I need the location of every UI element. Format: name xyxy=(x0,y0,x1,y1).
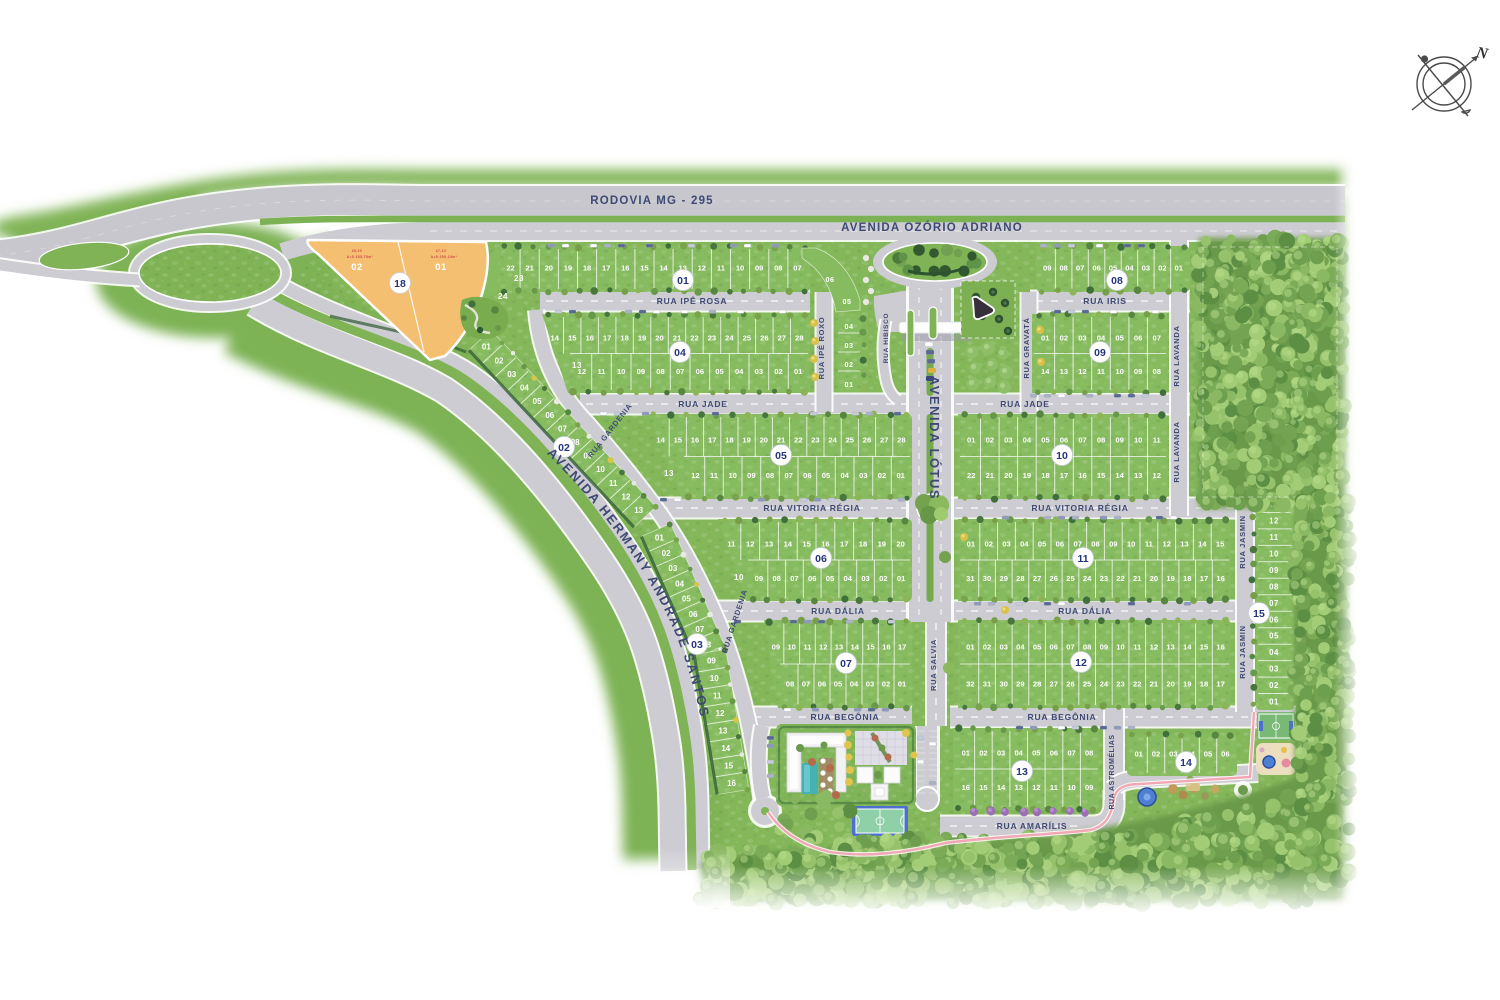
svg-text:02: 02 xyxy=(1269,681,1279,690)
svg-text:26: 26 xyxy=(863,436,871,445)
svg-text:01: 01 xyxy=(962,749,971,758)
svg-text:07: 07 xyxy=(793,264,801,273)
svg-text:26: 26 xyxy=(1050,574,1058,583)
svg-text:14: 14 xyxy=(997,783,1006,792)
svg-text:10: 10 xyxy=(1134,436,1142,445)
svg-text:23: 23 xyxy=(514,274,524,283)
svg-text:08: 08 xyxy=(1085,749,1093,758)
svg-text:06: 06 xyxy=(1134,334,1142,343)
svg-text:13: 13 xyxy=(765,540,773,549)
svg-text:12: 12 xyxy=(698,264,706,273)
svg-text:03: 03 xyxy=(999,642,1007,651)
svg-text:20: 20 xyxy=(896,540,904,549)
svg-text:01: 01 xyxy=(966,642,975,651)
svg-text:16: 16 xyxy=(691,436,699,445)
svg-text:15: 15 xyxy=(568,334,577,343)
svg-text:13: 13 xyxy=(718,727,727,736)
svg-text:01: 01 xyxy=(1269,698,1279,707)
svg-text:14: 14 xyxy=(851,642,860,651)
svg-text:17: 17 xyxy=(840,540,848,549)
svg-text:08: 08 xyxy=(786,679,794,688)
svg-text:RUA IPÊ ROXO: RUA IPÊ ROXO xyxy=(817,317,826,380)
svg-text:29: 29 xyxy=(999,574,1007,583)
svg-text:47,23: 47,23 xyxy=(436,249,446,253)
svg-text:11: 11 xyxy=(803,642,812,651)
svg-text:07: 07 xyxy=(1066,642,1074,651)
svg-text:03: 03 xyxy=(507,370,516,379)
svg-text:RUA JASMIN: RUA JASMIN xyxy=(1238,625,1247,678)
svg-text:18: 18 xyxy=(1041,471,1049,480)
svg-text:03: 03 xyxy=(1004,436,1012,445)
svg-text:16: 16 xyxy=(1216,642,1224,651)
svg-text:24: 24 xyxy=(1100,679,1109,688)
svg-text:05: 05 xyxy=(1115,334,1124,343)
svg-text:03: 03 xyxy=(845,341,854,350)
svg-text:19: 19 xyxy=(1166,574,1174,583)
svg-text:21: 21 xyxy=(777,436,786,445)
svg-text:04: 04 xyxy=(1269,648,1279,657)
svg-text:16: 16 xyxy=(621,264,629,273)
svg-text:31: 31 xyxy=(983,679,992,688)
svg-text:01: 01 xyxy=(845,380,854,389)
svg-text:19: 19 xyxy=(638,334,646,343)
svg-text:08: 08 xyxy=(1083,642,1091,651)
svg-text:15: 15 xyxy=(802,540,811,549)
svg-text:30: 30 xyxy=(983,574,991,583)
svg-text:08: 08 xyxy=(1091,540,1099,549)
svg-text:15: 15 xyxy=(1216,540,1225,549)
svg-text:06: 06 xyxy=(1221,750,1229,759)
svg-text:17: 17 xyxy=(1200,574,1208,583)
svg-text:08: 08 xyxy=(1097,436,1105,445)
svg-text:28: 28 xyxy=(795,334,803,343)
svg-text:01: 01 xyxy=(897,574,906,583)
svg-text:20: 20 xyxy=(1166,679,1174,688)
svg-text:06: 06 xyxy=(696,367,704,376)
svg-text:11: 11 xyxy=(597,367,606,376)
svg-text:09: 09 xyxy=(1043,264,1051,273)
svg-text:15: 15 xyxy=(724,762,733,771)
svg-text:RUA DÁLIA: RUA DÁLIA xyxy=(811,606,865,616)
svg-text:11: 11 xyxy=(1133,642,1142,651)
svg-text:01: 01 xyxy=(794,367,803,376)
svg-text:06: 06 xyxy=(1060,436,1068,445)
svg-text:12: 12 xyxy=(1078,367,1086,376)
svg-text:RUA ASTROMÉLIAS: RUA ASTROMÉLIAS xyxy=(1107,734,1116,809)
svg-text:05: 05 xyxy=(775,450,787,462)
svg-text:06: 06 xyxy=(808,574,816,583)
svg-text:16: 16 xyxy=(727,779,736,788)
svg-text:06: 06 xyxy=(1056,540,1064,549)
svg-text:15: 15 xyxy=(1253,608,1265,620)
svg-text:13: 13 xyxy=(1166,642,1174,651)
svg-text:01: 01 xyxy=(896,471,905,480)
svg-text:22: 22 xyxy=(794,436,802,445)
svg-text:02: 02 xyxy=(1060,334,1068,343)
svg-text:01: 01 xyxy=(967,540,976,549)
svg-text:06: 06 xyxy=(545,411,554,420)
svg-text:10: 10 xyxy=(787,642,795,651)
svg-text:27: 27 xyxy=(880,436,888,445)
svg-text:09: 09 xyxy=(1100,642,1108,651)
svg-text:23: 23 xyxy=(811,436,819,445)
svg-text:07: 07 xyxy=(558,424,567,433)
svg-text:02: 02 xyxy=(986,436,994,445)
svg-text:16: 16 xyxy=(882,642,890,651)
svg-text:13: 13 xyxy=(1180,540,1188,549)
svg-text:12: 12 xyxy=(691,471,699,480)
svg-text:17: 17 xyxy=(603,334,611,343)
svg-text:21: 21 xyxy=(1133,574,1142,583)
svg-text:02: 02 xyxy=(495,356,504,365)
svg-text:01: 01 xyxy=(655,534,664,543)
svg-text:05: 05 xyxy=(843,297,852,306)
svg-text:12: 12 xyxy=(716,709,725,718)
svg-text:17: 17 xyxy=(1060,471,1068,480)
svg-text:15: 15 xyxy=(640,264,649,273)
svg-text:20: 20 xyxy=(1150,574,1158,583)
svg-text:03: 03 xyxy=(859,471,867,480)
svg-text:14: 14 xyxy=(1183,642,1192,651)
svg-text:06: 06 xyxy=(1050,749,1058,758)
svg-text:28: 28 xyxy=(1016,574,1024,583)
svg-text:23: 23 xyxy=(1116,679,1124,688)
svg-text:22: 22 xyxy=(690,334,698,343)
svg-text:06: 06 xyxy=(1269,615,1279,624)
svg-text:10: 10 xyxy=(728,471,736,480)
svg-text:11: 11 xyxy=(717,264,726,273)
svg-text:14: 14 xyxy=(1198,540,1207,549)
svg-text:04: 04 xyxy=(675,579,684,588)
svg-text:08: 08 xyxy=(772,574,780,583)
svg-text:18: 18 xyxy=(583,264,591,273)
svg-text:16: 16 xyxy=(1216,574,1224,583)
svg-text:21: 21 xyxy=(986,471,995,480)
svg-text:03: 03 xyxy=(1142,264,1150,273)
svg-text:14: 14 xyxy=(1115,471,1124,480)
svg-text:RUA DÁLIA: RUA DÁLIA xyxy=(1058,606,1112,616)
svg-text:05: 05 xyxy=(1032,749,1041,758)
svg-text:09: 09 xyxy=(637,367,645,376)
svg-text:07: 07 xyxy=(790,574,798,583)
svg-text:19: 19 xyxy=(742,436,750,445)
svg-text:08: 08 xyxy=(656,367,664,376)
svg-text:08: 08 xyxy=(1269,582,1279,591)
svg-text:RUA BEGÔNIA: RUA BEGÔNIA xyxy=(811,711,880,722)
svg-text:27: 27 xyxy=(1050,679,1058,688)
svg-text:14: 14 xyxy=(1180,757,1192,769)
svg-text:09: 09 xyxy=(1109,540,1117,549)
svg-text:18: 18 xyxy=(859,540,867,549)
svg-text:18: 18 xyxy=(1183,574,1191,583)
svg-text:15: 15 xyxy=(674,436,683,445)
svg-text:21: 21 xyxy=(1150,679,1159,688)
svg-text:12: 12 xyxy=(1269,516,1279,525)
svg-text:04: 04 xyxy=(840,471,849,480)
svg-text:05: 05 xyxy=(1041,436,1050,445)
svg-text:08: 08 xyxy=(766,471,774,480)
svg-text:RUA VITORIA RÉGIA: RUA VITORIA RÉGIA xyxy=(1031,503,1128,513)
svg-text:09: 09 xyxy=(755,574,763,583)
svg-text:07: 07 xyxy=(802,679,810,688)
svg-text:10: 10 xyxy=(710,674,719,683)
svg-text:10: 10 xyxy=(1269,549,1279,558)
svg-text:13: 13 xyxy=(1060,367,1068,376)
svg-text:05: 05 xyxy=(834,679,843,688)
svg-text:07: 07 xyxy=(1067,749,1075,758)
svg-text:17: 17 xyxy=(1216,679,1224,688)
svg-text:06: 06 xyxy=(815,553,827,565)
svg-text:07: 07 xyxy=(840,658,852,670)
svg-text:24: 24 xyxy=(828,436,837,445)
svg-text:14: 14 xyxy=(659,264,668,273)
svg-text:24: 24 xyxy=(498,292,508,301)
svg-text:16: 16 xyxy=(1078,471,1086,480)
svg-text:15: 15 xyxy=(979,783,988,792)
svg-text:20: 20 xyxy=(760,436,768,445)
svg-text:01: 01 xyxy=(967,436,976,445)
svg-text:05: 05 xyxy=(715,367,724,376)
svg-text:09: 09 xyxy=(772,642,780,651)
svg-text:09: 09 xyxy=(1085,783,1093,792)
svg-text:25: 25 xyxy=(743,334,752,343)
svg-text:16: 16 xyxy=(962,783,970,792)
svg-text:05: 05 xyxy=(1038,540,1047,549)
svg-text:12: 12 xyxy=(1153,471,1161,480)
svg-text:05: 05 xyxy=(1269,632,1279,641)
svg-text:14: 14 xyxy=(1041,367,1050,376)
svg-text:09: 09 xyxy=(747,471,755,480)
svg-text:12: 12 xyxy=(1162,540,1170,549)
svg-text:23: 23 xyxy=(708,334,716,343)
svg-text:RUA AMARÍLIS: RUA AMARÍLIS xyxy=(997,821,1068,831)
svg-text:10: 10 xyxy=(736,264,744,273)
svg-text:13: 13 xyxy=(1014,783,1022,792)
svg-text:09: 09 xyxy=(1094,347,1106,359)
svg-text:20: 20 xyxy=(545,264,553,273)
svg-text:02: 02 xyxy=(1158,264,1166,273)
svg-text:06: 06 xyxy=(826,275,835,284)
svg-text:01: 01 xyxy=(1041,334,1050,343)
svg-text:02: 02 xyxy=(984,540,992,549)
svg-text:28: 28 xyxy=(1033,679,1041,688)
svg-text:AVENIDA LÓTUS: AVENIDA LÓTUS xyxy=(927,376,942,500)
svg-text:19: 19 xyxy=(1183,679,1191,688)
svg-text:RUA JADE: RUA JADE xyxy=(678,399,728,409)
svg-text:06: 06 xyxy=(803,471,811,480)
svg-text:03: 03 xyxy=(1269,665,1279,674)
svg-text:03: 03 xyxy=(668,564,677,573)
svg-text:14: 14 xyxy=(721,744,730,753)
svg-text:10: 10 xyxy=(1116,642,1124,651)
svg-text:12: 12 xyxy=(622,492,631,501)
svg-text:09: 09 xyxy=(1115,436,1123,445)
svg-text:17: 17 xyxy=(708,436,716,445)
svg-text:02: 02 xyxy=(879,574,887,583)
svg-text:13: 13 xyxy=(634,506,643,515)
svg-text:22: 22 xyxy=(967,471,975,480)
svg-text:12: 12 xyxy=(746,540,754,549)
svg-text:07: 07 xyxy=(784,471,792,480)
svg-text:23: 23 xyxy=(1100,574,1108,583)
svg-text:13: 13 xyxy=(1016,766,1028,778)
svg-text:05: 05 xyxy=(682,595,691,604)
svg-text:RUA LAVANDA: RUA LAVANDA xyxy=(1172,421,1181,482)
svg-text:05: 05 xyxy=(822,471,831,480)
svg-text:30: 30 xyxy=(999,679,1007,688)
svg-text:04: 04 xyxy=(845,322,854,331)
svg-text:03: 03 xyxy=(997,749,1005,758)
svg-text:10: 10 xyxy=(1115,367,1123,376)
svg-text:02: 02 xyxy=(845,360,854,369)
svg-text:18: 18 xyxy=(620,334,628,343)
svg-text:RODOVIA MG - 295: RODOVIA MG - 295 xyxy=(590,195,714,207)
svg-text:25: 25 xyxy=(846,436,855,445)
svg-text:16: 16 xyxy=(585,334,593,343)
svg-text:10: 10 xyxy=(1067,783,1075,792)
svg-text:29: 29 xyxy=(1016,679,1024,688)
svg-text:01: 01 xyxy=(1134,750,1143,759)
svg-text:11: 11 xyxy=(1145,540,1154,549)
svg-text:01: 01 xyxy=(1175,264,1184,273)
svg-text:02: 02 xyxy=(1152,750,1160,759)
svg-text:19: 19 xyxy=(564,264,572,273)
svg-text:24: 24 xyxy=(725,334,734,343)
svg-text:18: 18 xyxy=(725,436,733,445)
svg-text:04: 04 xyxy=(674,347,686,359)
svg-text:03: 03 xyxy=(755,367,763,376)
svg-text:07: 07 xyxy=(1076,264,1084,273)
svg-text:RUA IRIS: RUA IRIS xyxy=(1083,296,1126,306)
svg-text:06: 06 xyxy=(689,610,698,619)
svg-text:15: 15 xyxy=(1200,642,1209,651)
svg-text:22: 22 xyxy=(1133,679,1141,688)
svg-text:11: 11 xyxy=(1269,533,1278,542)
svg-text:06: 06 xyxy=(818,679,826,688)
svg-text:02: 02 xyxy=(662,549,671,558)
svg-text:06: 06 xyxy=(1092,264,1100,273)
svg-text:10: 10 xyxy=(1056,450,1068,462)
svg-text:45,00: 45,00 xyxy=(352,249,362,253)
svg-text:01: 01 xyxy=(677,275,689,287)
svg-text:08: 08 xyxy=(1059,264,1067,273)
svg-text:11: 11 xyxy=(609,479,618,488)
svg-text:08: 08 xyxy=(774,264,782,273)
svg-text:11: 11 xyxy=(1077,553,1088,565)
svg-text:11: 11 xyxy=(713,692,722,701)
svg-text:05: 05 xyxy=(826,574,835,583)
svg-text:27: 27 xyxy=(778,334,786,343)
svg-text:22: 22 xyxy=(506,264,514,273)
svg-text:RUA HIBISCO: RUA HIBISCO xyxy=(883,313,890,363)
svg-text:06: 06 xyxy=(1050,642,1058,651)
svg-text:26: 26 xyxy=(760,334,768,343)
svg-text:12: 12 xyxy=(819,642,827,651)
svg-text:RUA VITORIA RÉGIA: RUA VITORIA RÉGIA xyxy=(763,503,860,513)
svg-text:01: 01 xyxy=(898,679,907,688)
svg-text:07: 07 xyxy=(1152,334,1160,343)
svg-text:13: 13 xyxy=(664,469,674,478)
svg-text:03: 03 xyxy=(866,679,874,688)
svg-text:28: 28 xyxy=(897,436,905,445)
svg-text:04: 04 xyxy=(520,384,529,393)
svg-text:09: 09 xyxy=(707,657,716,666)
svg-text:04: 04 xyxy=(735,367,744,376)
svg-text:11: 11 xyxy=(710,471,719,480)
svg-text:07: 07 xyxy=(1269,599,1279,608)
svg-text:09: 09 xyxy=(1134,367,1142,376)
svg-text:11: 11 xyxy=(1050,783,1059,792)
svg-text:04: 04 xyxy=(1020,540,1029,549)
svg-text:21: 21 xyxy=(525,264,534,273)
svg-text:RUA BEGÔNIA: RUA BEGÔNIA xyxy=(1028,711,1097,722)
svg-text:RUA LAVANDA: RUA LAVANDA xyxy=(1172,325,1181,386)
svg-text:19: 19 xyxy=(878,540,886,549)
svg-text:RUA GRAVATÁ: RUA GRAVATÁ xyxy=(1022,317,1031,378)
svg-text:12: 12 xyxy=(1032,783,1040,792)
svg-text:RUA SALVIA: RUA SALVIA xyxy=(929,639,938,691)
svg-text:13: 13 xyxy=(835,642,843,651)
svg-text:AVENIDA OZÓRIO ADRIANO: AVENIDA OZÓRIO ADRIANO xyxy=(841,221,1023,234)
svg-text:25: 25 xyxy=(1066,574,1075,583)
svg-text:02: 02 xyxy=(882,679,890,688)
svg-text:13: 13 xyxy=(1134,471,1142,480)
svg-text:10: 10 xyxy=(1127,540,1135,549)
svg-text:15: 15 xyxy=(866,642,875,651)
svg-text:02: 02 xyxy=(878,471,886,480)
svg-text:01: 01 xyxy=(435,262,447,273)
svg-text:RUA JADE: RUA JADE xyxy=(1000,399,1050,409)
svg-text:10: 10 xyxy=(596,465,605,474)
svg-text:A=5.050,19m²: A=5.050,19m² xyxy=(431,255,457,259)
svg-text:02: 02 xyxy=(983,642,991,651)
svg-text:10: 10 xyxy=(734,573,744,582)
svg-text:08: 08 xyxy=(1111,275,1123,287)
svg-text:12: 12 xyxy=(1150,642,1158,651)
svg-text:03: 03 xyxy=(1078,334,1086,343)
svg-text:11: 11 xyxy=(727,540,736,549)
svg-text:32: 32 xyxy=(966,679,974,688)
svg-text:04: 04 xyxy=(1125,264,1134,273)
svg-text:09: 09 xyxy=(1269,566,1279,575)
svg-text:02: 02 xyxy=(979,749,987,758)
svg-text:03: 03 xyxy=(861,574,869,583)
svg-text:05: 05 xyxy=(533,397,542,406)
svg-text:08: 08 xyxy=(1152,367,1160,376)
svg-text:20: 20 xyxy=(1004,471,1012,480)
svg-text:04: 04 xyxy=(850,679,859,688)
svg-text:17: 17 xyxy=(898,642,906,651)
svg-text:04: 04 xyxy=(1014,749,1023,758)
svg-text:07: 07 xyxy=(1073,540,1081,549)
svg-text:11: 11 xyxy=(1153,436,1162,445)
svg-text:04: 04 xyxy=(1023,436,1032,445)
svg-text:13: 13 xyxy=(572,361,582,370)
svg-text:17: 17 xyxy=(602,264,610,273)
svg-text:01: 01 xyxy=(482,343,491,352)
svg-text:A=5.355,78m²: A=5.355,78m² xyxy=(347,255,373,259)
svg-text:07: 07 xyxy=(676,367,684,376)
svg-text:05: 05 xyxy=(1033,642,1042,651)
svg-text:11: 11 xyxy=(1097,367,1106,376)
svg-text:25: 25 xyxy=(1083,679,1092,688)
svg-text:10: 10 xyxy=(617,367,625,376)
svg-text:03: 03 xyxy=(1002,540,1010,549)
svg-text:04: 04 xyxy=(1016,642,1025,651)
svg-text:18: 18 xyxy=(1200,679,1208,688)
svg-text:RUA IPÊ ROSA: RUA IPÊ ROSA xyxy=(657,295,728,306)
svg-text:14: 14 xyxy=(784,540,793,549)
